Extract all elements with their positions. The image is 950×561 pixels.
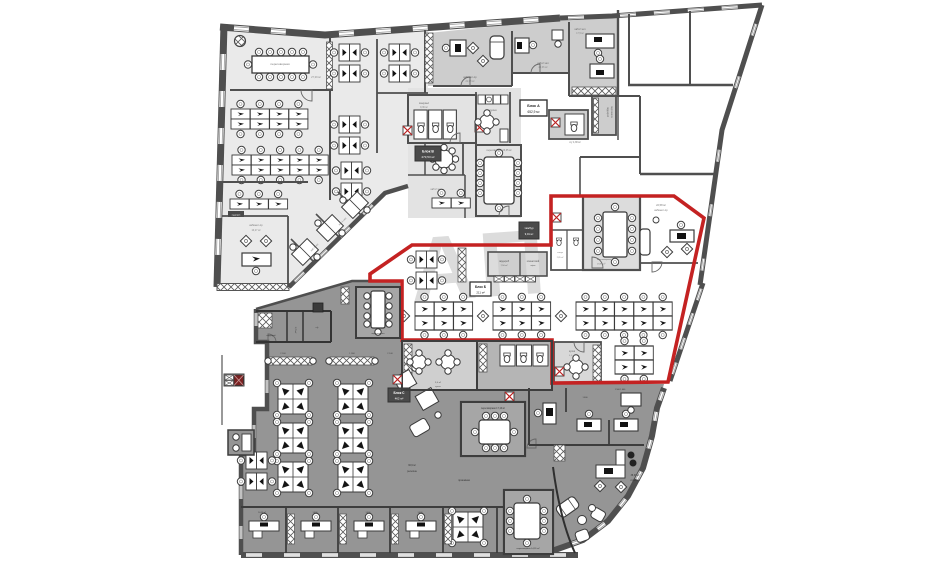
svg-text:офис: офис bbox=[530, 264, 536, 267]
svg-text:переговорная: переговорная bbox=[372, 333, 385, 335]
svg-text:гардероб: гардероб bbox=[232, 215, 241, 217]
svg-text:переговорная 17,16 м²: переговорная 17,16 м² bbox=[481, 407, 505, 410]
svg-text:1 600: 1 600 bbox=[582, 397, 588, 399]
svg-text:2,85 м²: 2,85 м² bbox=[557, 256, 564, 259]
svg-text:9,91 м²: 9,91 м² bbox=[525, 232, 534, 236]
svg-text:персонала: персонала bbox=[610, 106, 612, 118]
svg-text:каб 2 чел: каб 2 чел bbox=[431, 188, 442, 191]
svg-text:кухня: кухня bbox=[435, 386, 441, 388]
svg-text:отдых-зн: отдых-зн bbox=[630, 480, 640, 482]
svg-text:ресепшн: ресепшн bbox=[407, 470, 417, 473]
svg-text:1 600: 1 600 bbox=[365, 512, 371, 514]
svg-text:6,5 м²: 6,5 м² bbox=[569, 354, 575, 357]
svg-text:Блок В: Блок В bbox=[422, 150, 434, 154]
svg-text:7,50 м²: 7,50 м² bbox=[500, 264, 507, 267]
svg-text:462 м²: 462 м² bbox=[395, 397, 404, 401]
svg-text:санузел: санузел bbox=[419, 101, 430, 105]
svg-text:1 600: 1 600 bbox=[417, 512, 423, 514]
svg-text:кухня: кухня bbox=[489, 108, 497, 112]
svg-text:клиентский: клиентский bbox=[527, 260, 540, 263]
svg-text:38,31 м²: 38,31 м² bbox=[631, 474, 640, 477]
svg-text:сануз: сануз bbox=[557, 252, 563, 254]
svg-text:Блок С: Блок С bbox=[393, 391, 405, 395]
svg-text:17,5 м²: 17,5 м² bbox=[576, 32, 584, 35]
svg-text:19,96 м²: 19,96 м² bbox=[597, 263, 606, 266]
svg-text:211 м²: 211 м² bbox=[476, 291, 484, 295]
svg-text:кабинет-пр: кабинет-пр bbox=[249, 223, 263, 227]
svg-text:27,39 м²: 27,39 м² bbox=[311, 75, 321, 79]
svg-text:кухня: кухня bbox=[569, 350, 576, 353]
svg-text:2,79 м²: 2,79 м² bbox=[294, 327, 297, 334]
svg-text:переговорная: переговорная bbox=[270, 62, 290, 66]
svg-text:гардероб: гардероб bbox=[266, 335, 276, 337]
svg-text:гардероб: гардероб bbox=[499, 260, 510, 263]
svg-text:273,53 м²: 273,53 м² bbox=[421, 155, 434, 159]
svg-text:16,27 м²: 16,27 м² bbox=[251, 229, 260, 232]
svg-text:Блок А: Блок А bbox=[527, 104, 540, 108]
svg-text:10,16 м²: 10,16 м² bbox=[258, 511, 266, 514]
svg-text:1 500 1 600: 1 500 1 600 bbox=[615, 389, 626, 391]
svg-text:2 160: 2 160 bbox=[280, 353, 286, 355]
svg-text:652,9 м²: 652,9 м² bbox=[527, 110, 539, 114]
svg-text:приемная: приемная bbox=[458, 479, 470, 482]
svg-text:гардероб: гардероб bbox=[606, 107, 608, 117]
svg-text:2 140: 2 140 bbox=[387, 353, 393, 355]
svg-text:каб.2 чел: каб.2 чел bbox=[575, 28, 586, 31]
svg-text:переговорная 23,35 м²: переговорная 23,35 м² bbox=[486, 149, 511, 152]
svg-text:кабинет-пр: кабинет-пр bbox=[654, 208, 668, 212]
svg-text:1 900: 1 900 bbox=[349, 353, 355, 355]
svg-text:с/у 4,38 м²: с/у 4,38 м² bbox=[569, 141, 581, 144]
svg-text:30,9 м²: 30,9 м² bbox=[408, 464, 416, 467]
svg-text:Блок Б: Блок Б bbox=[475, 285, 487, 289]
svg-text:9,4 м²: 9,4 м² bbox=[435, 381, 441, 384]
svg-text:тамбур: тамбур bbox=[524, 226, 534, 230]
svg-text:22,58 м²: 22,58 м² bbox=[656, 203, 666, 207]
svg-text:переговорная 14,91 м²: переговорная 14,91 м² bbox=[517, 547, 540, 550]
svg-text:1 600: 1 600 bbox=[312, 512, 318, 514]
svg-text:9,36 м²: 9,36 м² bbox=[420, 106, 428, 109]
